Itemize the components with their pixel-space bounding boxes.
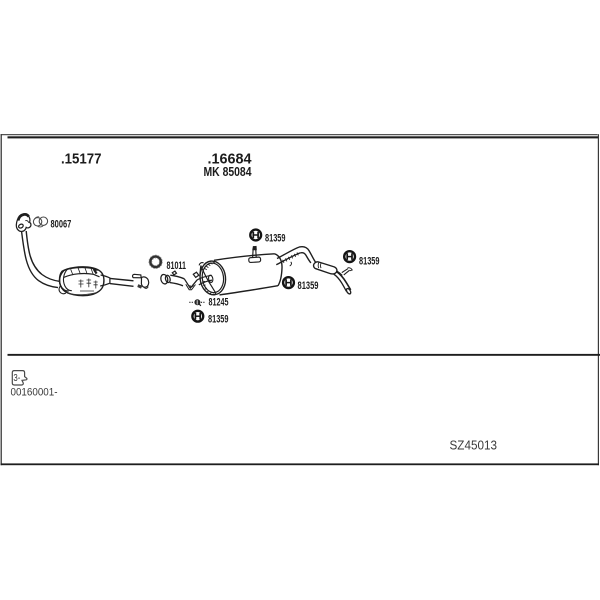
svg-text:SZ45013: SZ45013: [450, 438, 498, 452]
svg-text:3-: 3-: [13, 372, 20, 384]
svg-text:81359: 81359: [208, 314, 229, 326]
svg-text:81359: 81359: [298, 280, 319, 292]
svg-text:80067: 80067: [51, 218, 72, 230]
svg-text:00160001-: 00160001-: [11, 386, 58, 398]
svg-text:81011: 81011: [167, 260, 187, 272]
svg-text:MK 85084: MK 85084: [204, 165, 252, 179]
svg-text:.15177: .15177: [61, 151, 102, 168]
svg-text:81359: 81359: [265, 233, 286, 245]
svg-text:81245: 81245: [209, 297, 229, 309]
svg-text:81359: 81359: [359, 255, 380, 267]
